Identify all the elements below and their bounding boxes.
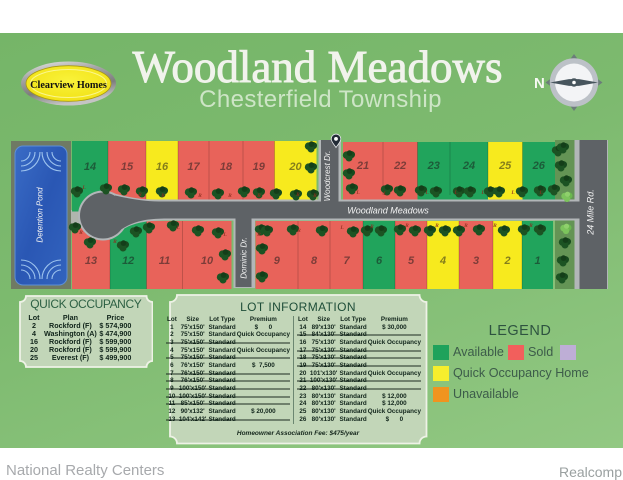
svg-text:R: R [369,224,374,230]
svg-text:R: R [78,230,83,236]
svg-text:R: R [312,193,317,199]
svg-text:19: 19 [253,161,266,173]
svg-text:R: R [160,193,165,199]
svg-text:Woodcrest Dr.: Woodcrest Dr. [323,151,332,202]
svg-text:9: 9 [274,255,281,267]
svg-text:R: R [296,228,301,234]
svg-text:R: R [256,232,261,238]
svg-text:L: L [355,190,360,196]
svg-text:11: 11 [159,255,170,267]
svg-text:3: 3 [473,255,479,267]
svg-text:Detention Pond: Detention Pond [36,187,45,243]
svg-text:R: R [256,193,261,199]
svg-text:8: 8 [311,255,318,267]
svg-text:L: L [453,190,458,196]
svg-text:R: R [227,193,232,199]
svg-text:Woodland Meadows: Woodland Meadows [347,206,429,216]
svg-text:L: L [510,190,515,196]
svg-text:1: 1 [534,255,540,267]
svg-text:R: R [404,223,409,229]
svg-text:20: 20 [288,161,302,173]
svg-text:13: 13 [85,255,97,267]
svg-text:L: L [382,191,387,197]
svg-text:L: L [339,225,344,231]
svg-text:R: R [528,223,533,229]
svg-text:24: 24 [462,160,475,172]
svg-text:R: R [112,239,117,245]
svg-text:R: R [434,223,439,229]
svg-text:L: L [222,232,227,238]
svg-text:5: 5 [408,255,415,267]
svg-text:16: 16 [156,161,169,173]
svg-text:L: L [538,190,543,196]
svg-text:18: 18 [220,161,233,173]
svg-text:22: 22 [393,160,406,172]
svg-text:R: R [137,192,142,198]
svg-text:Dominic Dr.: Dominic Dr. [240,237,249,278]
svg-text:R: R [197,193,202,199]
svg-text:21: 21 [356,160,369,172]
svg-text:26: 26 [532,160,546,172]
svg-text:R: R [492,223,497,229]
svg-text:23: 23 [427,160,440,172]
svg-text:25: 25 [498,160,512,172]
svg-text:L: L [81,185,86,191]
svg-text:7: 7 [343,255,350,267]
svg-text:10: 10 [201,255,214,267]
svg-text:6: 6 [376,255,383,267]
svg-text:17: 17 [187,161,200,173]
svg-text:L: L [175,225,180,231]
svg-text:4: 4 [439,255,446,267]
svg-text:L: L [424,190,429,196]
svg-text:2: 2 [503,255,510,267]
svg-text:L: L [480,190,485,196]
svg-text:12: 12 [122,255,134,267]
svg-text:15: 15 [121,161,134,173]
svg-text:R: R [463,223,468,229]
svg-text:14: 14 [84,161,96,173]
svg-text:24 Mile Rd.: 24 Mile Rd. [586,189,596,236]
svg-text:R: R [295,192,300,198]
